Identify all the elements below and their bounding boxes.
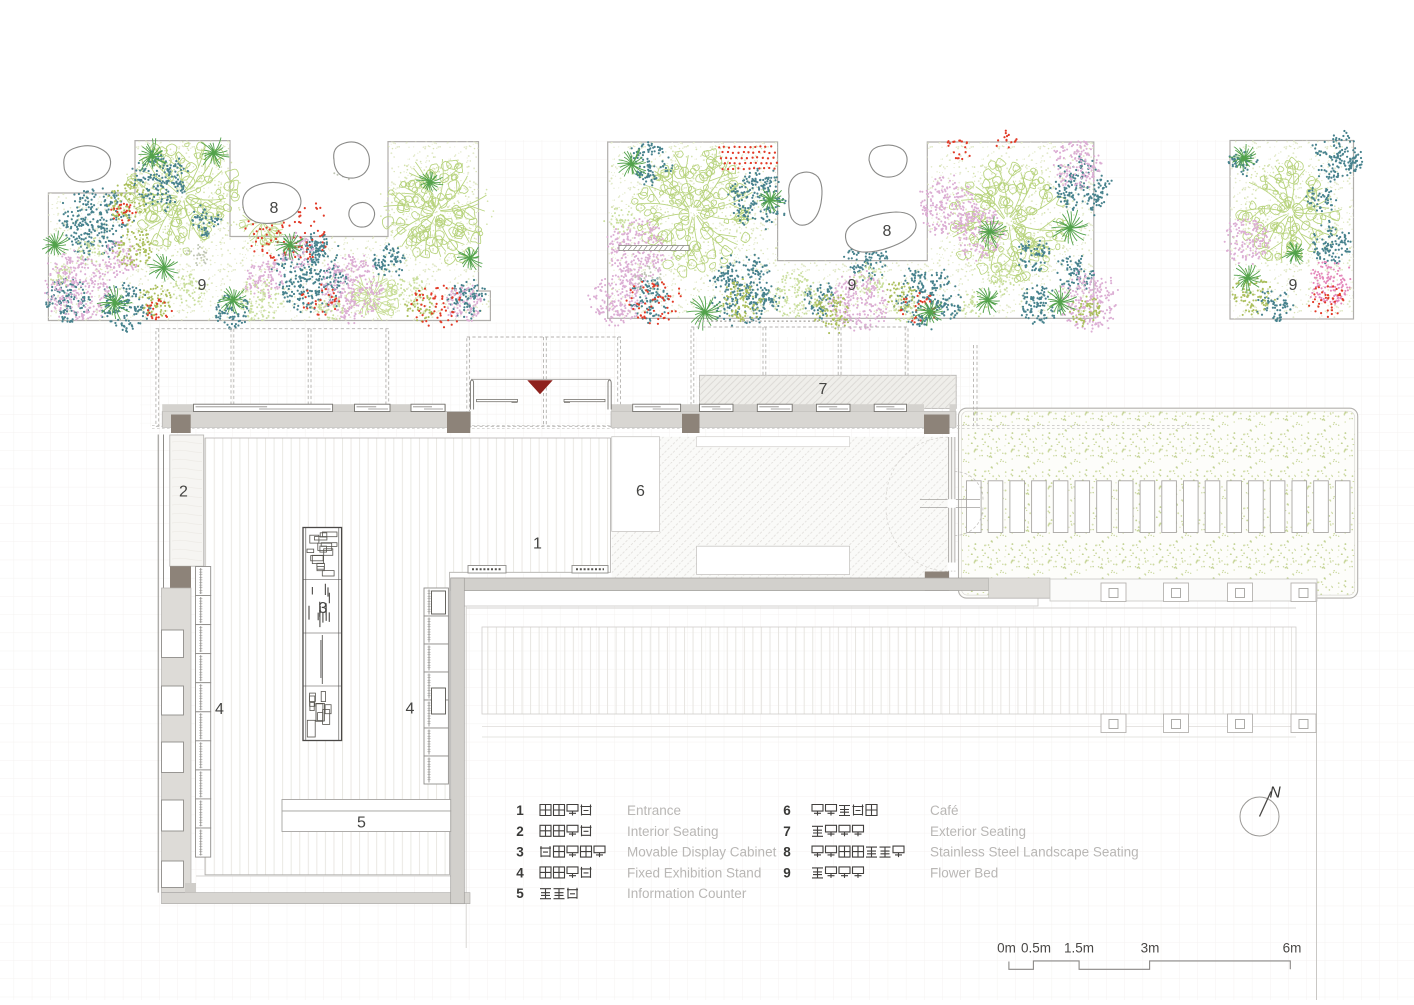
- svg-text:1: 1: [533, 536, 542, 553]
- svg-text:7: 7: [819, 381, 828, 398]
- svg-text:1: 1: [516, 803, 524, 818]
- svg-text:Information Counter: Information Counter: [627, 886, 747, 901]
- svg-text:Movable Display Cabinet: Movable Display Cabinet: [627, 845, 777, 860]
- svg-text:Entrance: Entrance: [627, 803, 681, 818]
- svg-text:7: 7: [783, 824, 791, 839]
- svg-text:9: 9: [198, 277, 207, 294]
- svg-text:3m: 3m: [1141, 941, 1160, 956]
- svg-text:5: 5: [357, 815, 366, 832]
- svg-text:Flower Bed: Flower Bed: [930, 865, 998, 880]
- svg-text:8: 8: [783, 845, 791, 860]
- svg-text:9: 9: [1289, 277, 1298, 294]
- svg-text:4: 4: [406, 701, 415, 718]
- svg-text:8: 8: [270, 200, 279, 217]
- svg-text:0m: 0m: [997, 941, 1016, 956]
- svg-text:4: 4: [516, 865, 524, 880]
- svg-text:6m: 6m: [1283, 941, 1302, 956]
- svg-text:9: 9: [848, 277, 857, 294]
- svg-text:6: 6: [636, 483, 645, 500]
- svg-text:Stainless Steel Landscape Seat: Stainless Steel Landscape Seating: [930, 845, 1139, 860]
- svg-text:Café: Café: [930, 803, 959, 818]
- svg-text:4: 4: [215, 701, 224, 718]
- svg-text:Interior Seating: Interior Seating: [627, 824, 719, 839]
- svg-text:3: 3: [516, 845, 524, 860]
- svg-text:1.5m: 1.5m: [1064, 941, 1094, 956]
- svg-text:2: 2: [179, 484, 188, 501]
- svg-text:Exterior Seating: Exterior Seating: [930, 824, 1026, 839]
- svg-text:2: 2: [516, 824, 524, 839]
- svg-text:3: 3: [319, 600, 328, 617]
- svg-text:Fixed Exhibition Stand: Fixed Exhibition Stand: [627, 865, 761, 880]
- svg-text:N: N: [1270, 785, 1282, 802]
- svg-text:0.5m: 0.5m: [1021, 941, 1051, 956]
- svg-text:8: 8: [883, 223, 892, 240]
- svg-text:6: 6: [783, 803, 791, 818]
- svg-text:5: 5: [516, 886, 524, 901]
- svg-text:9: 9: [783, 865, 791, 880]
